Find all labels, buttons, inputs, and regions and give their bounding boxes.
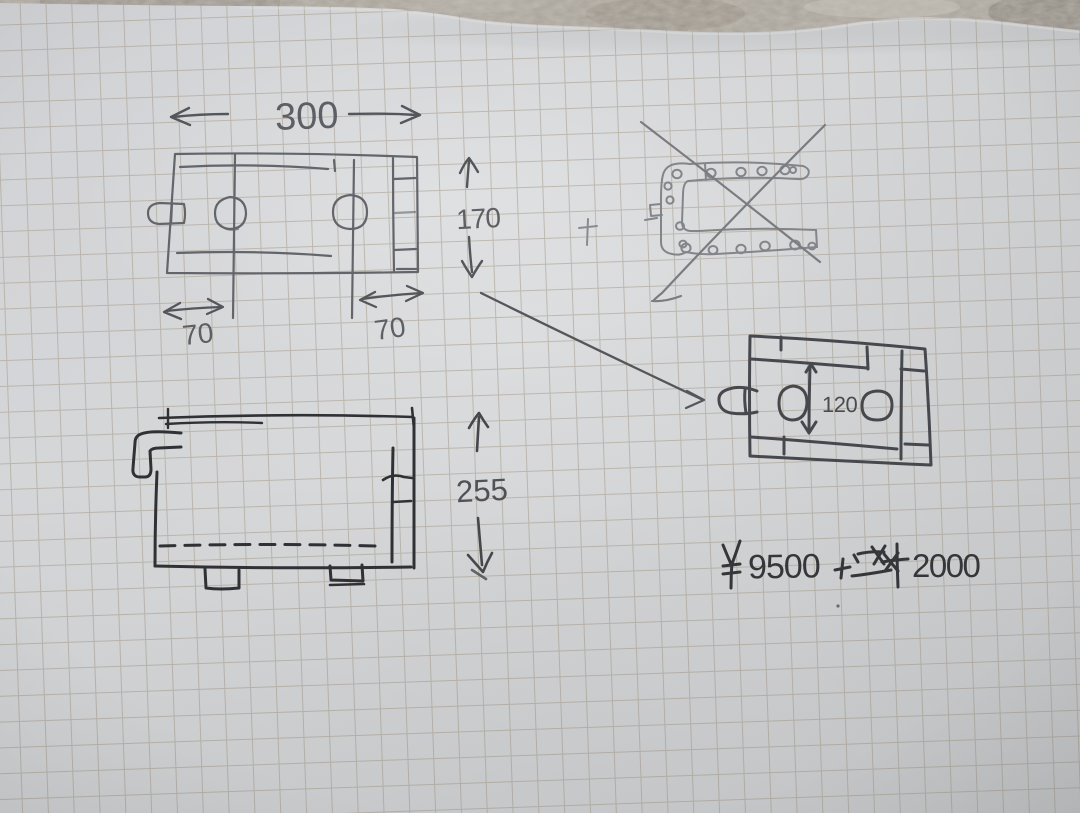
- svg-text:70: 70: [181, 317, 215, 351]
- svg-text:70: 70: [372, 311, 407, 346]
- svg-text:120: 120: [822, 392, 857, 417]
- svg-text:300: 300: [274, 95, 339, 139]
- svg-text:2000: 2000: [912, 547, 981, 584]
- svg-text:9500: 9500: [748, 547, 820, 586]
- svg-text:170: 170: [455, 202, 501, 235]
- svg-text:255: 255: [455, 472, 508, 510]
